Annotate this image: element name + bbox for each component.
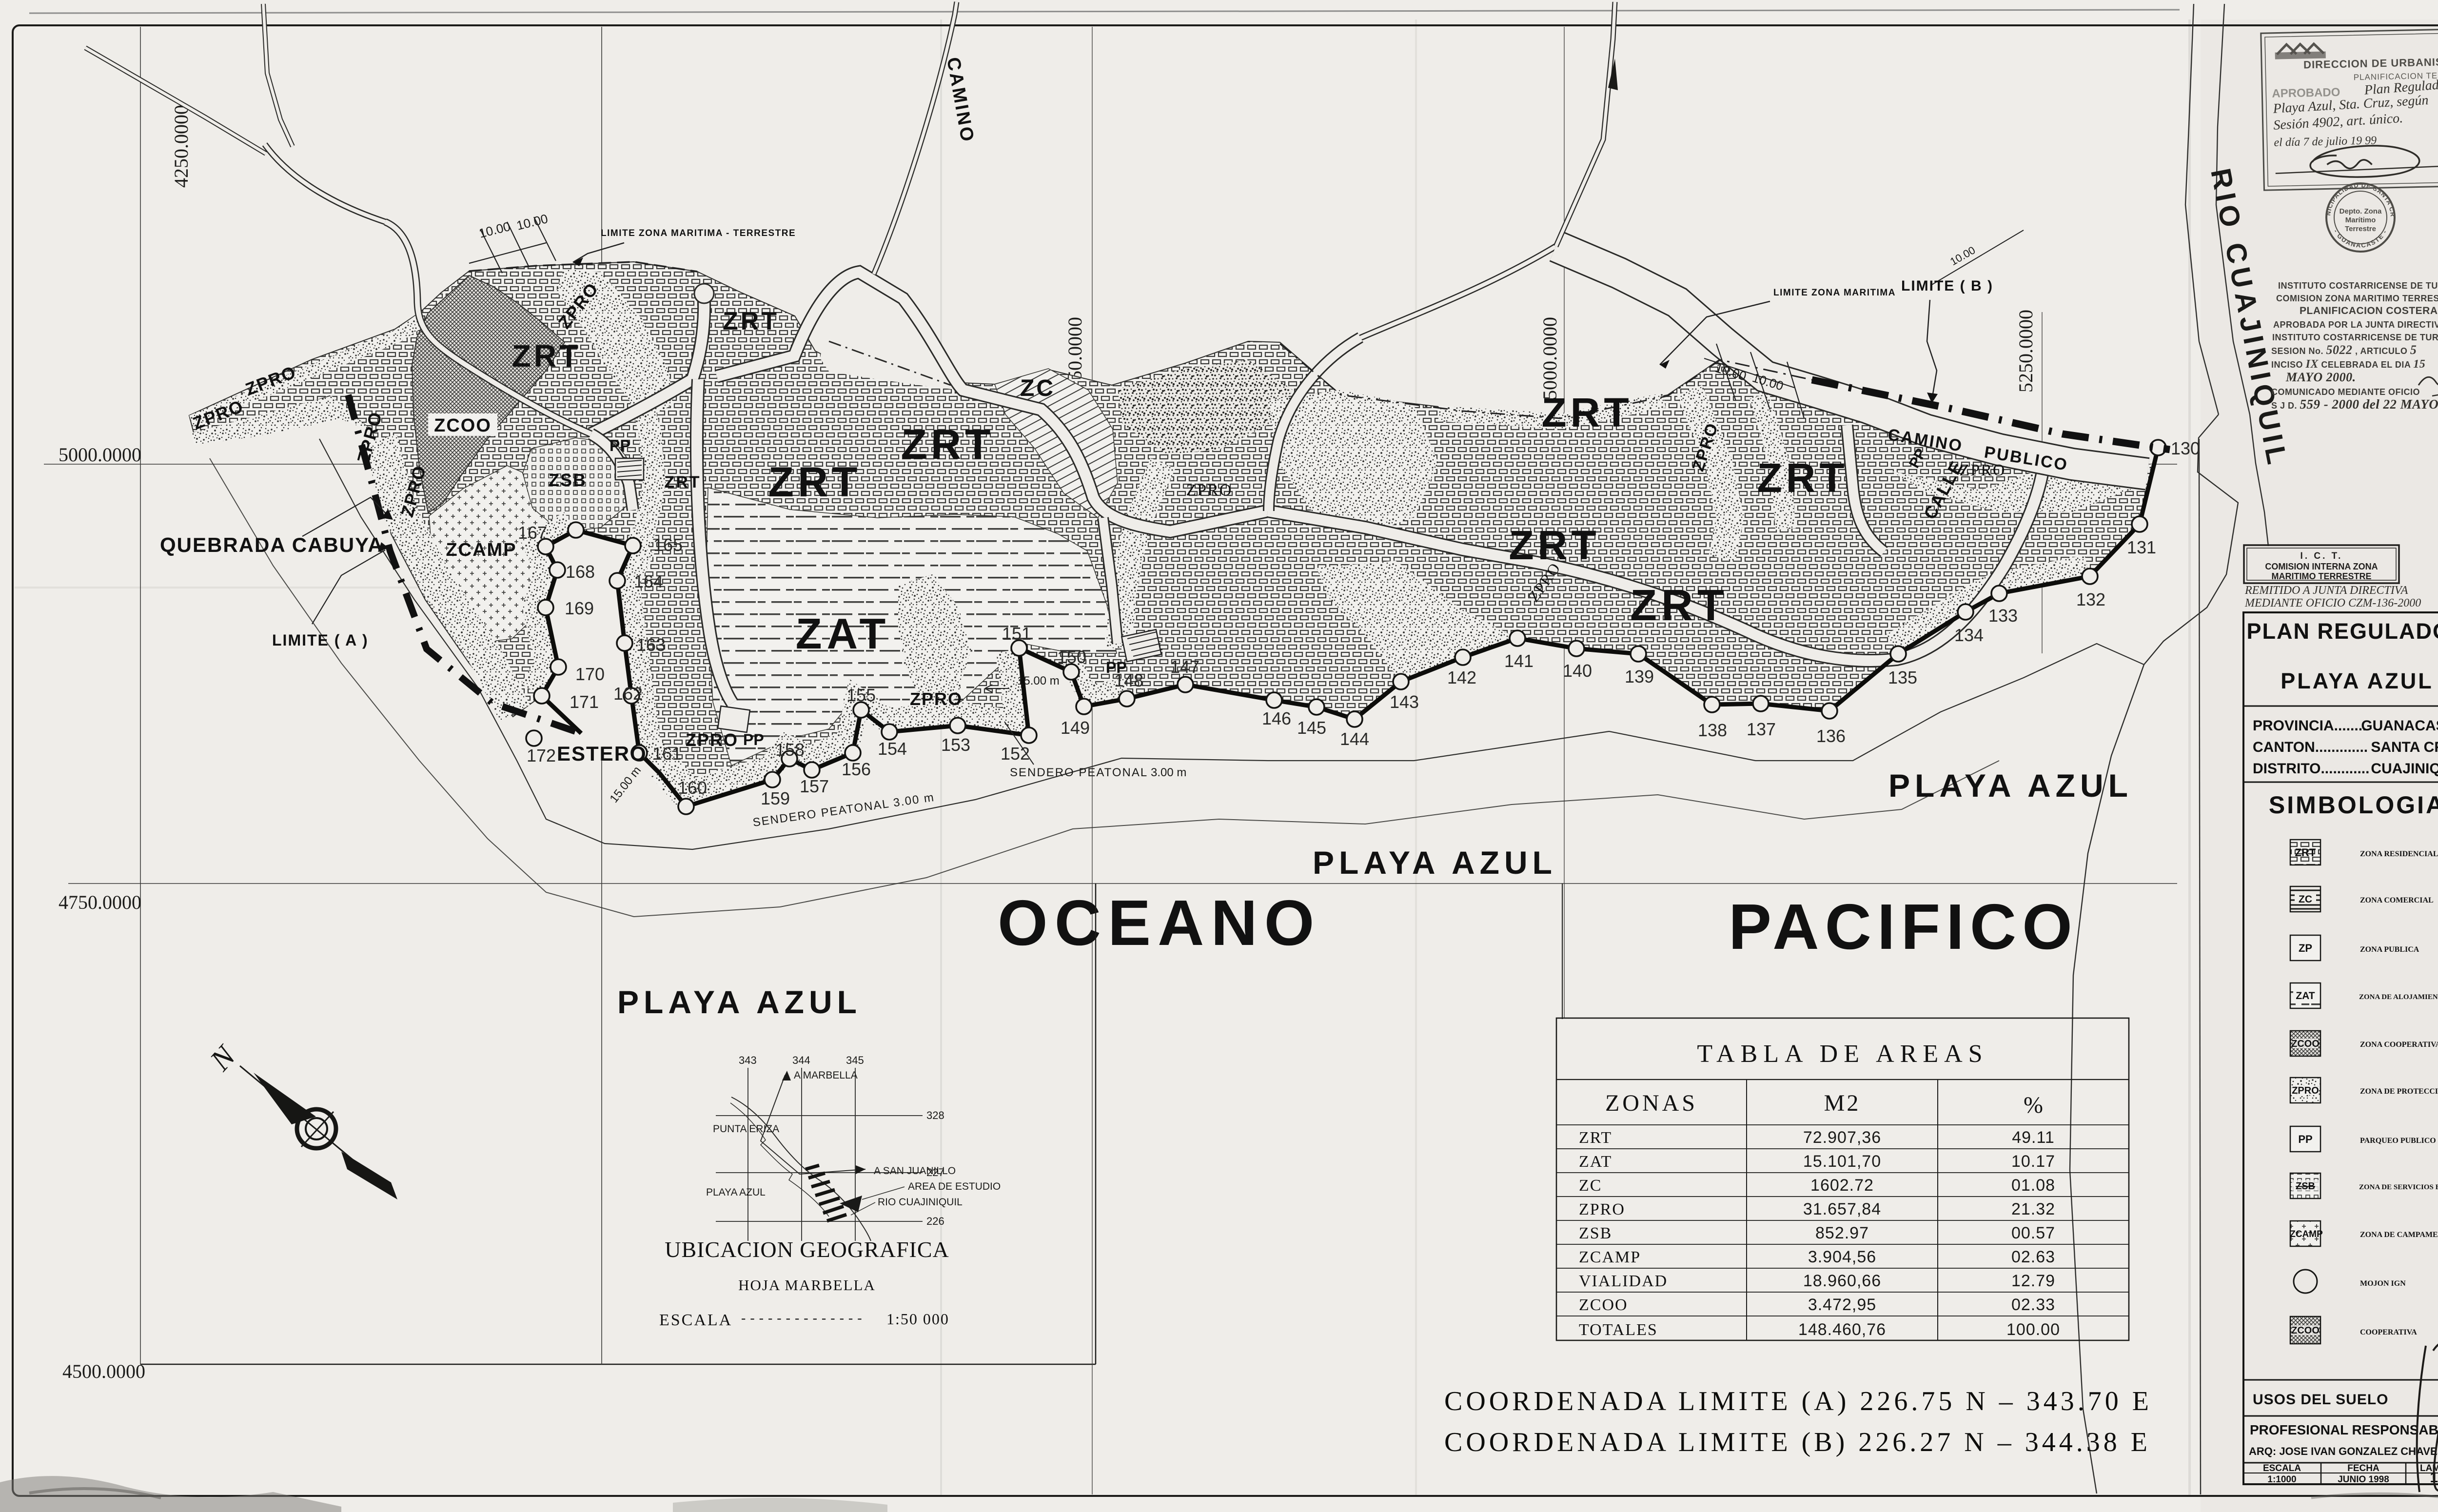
- svg-text:COOPERATIVA: COOPERATIVA: [2360, 1328, 2417, 1336]
- svg-text:134: 134: [1954, 625, 1984, 645]
- svg-text:MAYO 2000.: MAYO 2000.: [2285, 370, 2356, 384]
- svg-text:142: 142: [1447, 668, 1476, 687]
- svg-text:ZPRO: ZPRO: [1579, 1200, 1625, 1218]
- svg-text:PLAYA AZUL: PLAYA AZUL: [2281, 668, 2433, 693]
- svg-text:PACIFICO: PACIFICO: [1729, 891, 2078, 962]
- svg-text:155: 155: [846, 685, 876, 705]
- svg-text:12.79: 12.79: [2011, 1272, 2055, 1290]
- svg-text:M2: M2: [1824, 1090, 1861, 1116]
- svg-text:ZPRO: ZPRO: [1186, 481, 1233, 499]
- svg-text:171: 171: [570, 692, 599, 712]
- svg-text:151: 151: [1002, 624, 1031, 644]
- svg-text:ZRT: ZRT: [1579, 1129, 1612, 1147]
- svg-text:ZCOO: ZCOO: [2291, 1039, 2320, 1049]
- svg-text:ZPRO: ZPRO: [686, 730, 738, 750]
- svg-text:168: 168: [566, 562, 595, 582]
- svg-text:4250.0000: 4250.0000: [170, 105, 192, 188]
- svg-text:Marítimo: Marítimo: [2345, 216, 2376, 224]
- svg-text:TABLA DE AREAS: TABLA DE AREAS: [1697, 1040, 1988, 1068]
- svg-text:Terrestre: Terrestre: [2345, 225, 2376, 233]
- svg-text:COMISION ZONA MARITIMO TERREST: COMISION ZONA MARITIMO TERRESTRE: [2276, 294, 2438, 303]
- svg-text:136: 136: [1816, 726, 1846, 746]
- svg-text:ZCAMP: ZCAMP: [2290, 1229, 2323, 1239]
- svg-text:167: 167: [518, 523, 547, 543]
- svg-text:USOS DEL SUELO: USOS DEL SUELO: [2253, 1392, 2389, 1408]
- svg-text:PUNTA ERIZA: PUNTA ERIZA: [713, 1123, 779, 1135]
- svg-text:ZONA COOPERATIVAS: ZONA COOPERATIVAS: [2360, 1041, 2438, 1049]
- svg-text:148.460,76: 148.460,76: [1798, 1320, 1886, 1339]
- svg-text:1:1000: 1:1000: [2267, 1474, 2296, 1485]
- svg-text:162: 162: [613, 684, 643, 704]
- svg-text:ZONA COMERCIAL: ZONA COMERCIAL: [2360, 896, 2434, 904]
- svg-text:164: 164: [634, 571, 663, 591]
- svg-text:PLAYA AZUL: PLAYA AZUL: [1888, 767, 2133, 804]
- svg-text:15.101,70: 15.101,70: [1803, 1152, 1881, 1171]
- svg-text:345: 345: [846, 1054, 864, 1066]
- svg-text:PLAYA AZUL: PLAYA AZUL: [617, 984, 862, 1020]
- svg-text:DISTRITO............: DISTRITO............: [2253, 761, 2369, 777]
- svg-text:PROFESIONAL RESPONSABLE.: PROFESIONAL RESPONSABLE.: [2250, 1422, 2438, 1437]
- svg-text:ZAT: ZAT: [1579, 1153, 1612, 1171]
- svg-text:LIMITE ( B ): LIMITE ( B ): [1901, 278, 1993, 294]
- svg-text:ZSB: ZSB: [1579, 1224, 1612, 1242]
- svg-text:4750.0000: 4750.0000: [59, 891, 141, 913]
- svg-text:10.17: 10.17: [2011, 1152, 2055, 1171]
- svg-text:AREA DE ESTUDIO: AREA DE ESTUDIO: [908, 1181, 1001, 1192]
- svg-text:INSTITUTO COSTARRICENSE DE TUR: INSTITUTO COSTARRICENSE DE TURISMO EL: [2272, 333, 2438, 342]
- svg-text:ZSB: ZSB: [549, 470, 587, 490]
- svg-text:ZONA PUBLICA: ZONA PUBLICA: [2360, 945, 2419, 954]
- svg-text:PLAN REGULADOR: PLAN REGULADOR: [2247, 619, 2438, 644]
- svg-text:00.57: 00.57: [2011, 1224, 2055, 1242]
- svg-text:A MARBELLA: A MARBELLA: [794, 1070, 858, 1081]
- svg-text:5000.0000: 5000.0000: [59, 444, 141, 466]
- svg-text:COORDENADA LIMITE (B) 226.2: COORDENADA LIMITE (B) 226.27 N – 344.38 …: [1444, 1427, 2151, 1457]
- svg-text:ZRT: ZRT: [1630, 581, 1729, 630]
- svg-text:%: %: [2024, 1092, 2043, 1118]
- svg-text:A SAN JUANILLO: A SAN JUANILLO: [874, 1165, 956, 1177]
- svg-text:GUANACASTE: GUANACASTE: [2361, 718, 2438, 734]
- svg-text:852.97: 852.97: [1815, 1224, 1869, 1242]
- svg-text:156: 156: [842, 759, 871, 779]
- svg-text:1:50 000: 1:50 000: [886, 1310, 949, 1328]
- svg-text:158: 158: [775, 740, 805, 760]
- svg-text:APROBADA POR LA JUNTA DIRECTIV: APROBADA POR LA JUNTA DIRECTIVA DE: [2273, 320, 2438, 330]
- svg-text:226: 226: [926, 1215, 944, 1227]
- svg-text:143: 143: [1390, 692, 1419, 712]
- svg-text:LIMITE ( A ): LIMITE ( A ): [272, 631, 369, 649]
- svg-text:145: 145: [1297, 718, 1326, 738]
- svg-text:ZRT: ZRT: [512, 338, 581, 373]
- svg-text:ESCALA: ESCALA: [659, 1311, 732, 1329]
- svg-text:ZAT: ZAT: [2296, 990, 2315, 1001]
- svg-text:TOTALES: TOTALES: [1579, 1321, 1658, 1339]
- svg-text:PP: PP: [609, 437, 630, 454]
- svg-text:ZCAMP: ZCAMP: [1579, 1248, 1641, 1266]
- svg-text:172: 172: [527, 746, 556, 766]
- svg-text:02.63: 02.63: [2011, 1248, 2055, 1266]
- svg-text:49.11: 49.11: [2012, 1128, 2055, 1147]
- svg-text:COORDENADA LIMITE (A) 226.7: COORDENADA LIMITE (A) 226.75 N – 343.70 …: [1444, 1386, 2152, 1416]
- svg-text:ZRT: ZRT: [2295, 846, 2316, 859]
- svg-text:135: 135: [1888, 668, 1917, 687]
- svg-text:3.904,56: 3.904,56: [1808, 1248, 1876, 1266]
- svg-text:150: 150: [1057, 647, 1086, 667]
- svg-text:ZRT: ZRT: [768, 459, 861, 506]
- svg-text:PROVINCIA........: PROVINCIA........: [2253, 718, 2366, 734]
- svg-text:138: 138: [1698, 720, 1727, 740]
- svg-text:ZP: ZP: [2299, 942, 2312, 954]
- svg-text:18.960,66: 18.960,66: [1803, 1272, 1881, 1290]
- svg-text:149: 149: [1061, 718, 1090, 738]
- svg-text:PARQUEO PUBLICO: PARQUEO PUBLICO: [2360, 1137, 2436, 1145]
- svg-text:170: 170: [575, 664, 605, 684]
- svg-text:100.00: 100.00: [2006, 1320, 2060, 1339]
- svg-text:ESTERO: ESTERO: [557, 742, 647, 765]
- svg-text:141: 141: [1504, 651, 1534, 671]
- svg-text:OCEANO: OCEANO: [998, 887, 1321, 959]
- svg-text:ZRT: ZRT: [723, 307, 779, 335]
- svg-text:146: 146: [1262, 708, 1291, 728]
- svg-text:1602.72: 1602.72: [1810, 1176, 1874, 1195]
- svg-text:CUAJINIQUIL: CUAJINIQUIL: [2371, 761, 2438, 777]
- svg-text:ZCOO: ZCOO: [434, 415, 492, 436]
- svg-text:ZRT: ZRT: [901, 421, 994, 468]
- svg-text:159: 159: [761, 788, 790, 808]
- svg-text:ZPRO: ZPRO: [910, 689, 963, 709]
- svg-text:ZCOO: ZCOO: [1579, 1296, 1628, 1314]
- svg-text:131: 131: [2127, 537, 2156, 557]
- svg-text:144: 144: [1340, 729, 1369, 749]
- svg-text:VIALIDAD: VIALIDAD: [1579, 1272, 1668, 1290]
- svg-text:3.00 m: 3.00 m: [1151, 766, 1186, 779]
- svg-text:140: 140: [1563, 661, 1592, 681]
- svg-text:ZONA DE ALOJAMIENTO TURISTI: ZONA DE ALOJAMIENTO TURISTICO: [2359, 993, 2438, 1001]
- svg-text:FECHA: FECHA: [2347, 1463, 2379, 1473]
- svg-text:ESCALA: ESCALA: [2263, 1463, 2301, 1473]
- svg-text:Depto. Zona: Depto. Zona: [2340, 207, 2382, 216]
- svg-text:ZRT: ZRT: [1541, 390, 1632, 435]
- svg-text:ZONA DE CAMPAMENTO: ZONA DE CAMPAMENTO: [2360, 1231, 2438, 1239]
- svg-text:15.00 m: 15.00 m: [1017, 674, 1060, 687]
- svg-text:ZCAMP: ZCAMP: [446, 540, 516, 560]
- svg-text:ZRT: ZRT: [1509, 522, 1600, 568]
- svg-text:MOJON IGN: MOJON IGN: [2360, 1279, 2406, 1288]
- svg-text:ARQ: JOSE IVAN GONZALEZ CHAVES: ARQ: JOSE IVAN GONZALEZ CHAVES...A-3208: [2249, 1445, 2438, 1457]
- svg-text:CANTON.............: CANTON.............: [2253, 739, 2368, 755]
- svg-text:PLAYA AZUL: PLAYA AZUL: [706, 1187, 766, 1198]
- svg-text:ZRT: ZRT: [664, 473, 701, 491]
- svg-text:137: 137: [1747, 719, 1776, 739]
- svg-text:152: 152: [1001, 744, 1030, 764]
- svg-text:ZC: ZC: [1579, 1177, 1602, 1195]
- svg-text:153: 153: [941, 735, 970, 755]
- svg-text:ZONAS: ZONAS: [1605, 1090, 1698, 1116]
- svg-text:154: 154: [878, 739, 907, 759]
- svg-text:- - - - - - - - - - - - - -: - - - - - - - - - - - - - -: [741, 1311, 863, 1326]
- svg-text:COMISION INTERNA ZONA: COMISION INTERNA ZONA: [2265, 562, 2378, 571]
- svg-text:I. C. T.: I. C. T.: [2300, 551, 2343, 561]
- svg-text:343: 343: [739, 1054, 757, 1066]
- svg-text:328: 328: [926, 1109, 944, 1121]
- svg-text:ZONA DE SERVICIOS BASICOS: ZONA DE SERVICIOS BASICOS: [2359, 1183, 2438, 1191]
- svg-text:139: 139: [1625, 667, 1654, 687]
- svg-text:72.907,36: 72.907,36: [1803, 1128, 1881, 1147]
- svg-text:ZPRO: ZPRO: [2292, 1085, 2319, 1096]
- svg-text:SENDERO PEATONAL: SENDERO PEATONAL: [1010, 766, 1148, 779]
- svg-text:133: 133: [1988, 606, 2018, 626]
- svg-text:MARITIMO TERRESTRE: MARITIMO TERRESTRE: [2272, 571, 2372, 581]
- svg-text:5250.0000: 5250.0000: [2015, 310, 2037, 393]
- svg-text:REMITIDO A JUNTA DIRECTIVA: REMITIDO A JUNTA DIRECTIVA: [2244, 584, 2408, 597]
- svg-text:PP: PP: [743, 731, 764, 748]
- svg-text:PLANIFICACION COSTERA: PLANIFICACION COSTERA: [2300, 305, 2438, 316]
- svg-text:157: 157: [800, 776, 829, 796]
- svg-text:ZC: ZC: [2299, 894, 2312, 905]
- svg-text:SIMBOLOGIA: SIMBOLOGIA: [2269, 791, 2438, 819]
- svg-text:COMUNICADO MEDIANTE OFICIO: COMUNICADO MEDIANTE OFICIO: [2271, 387, 2420, 397]
- svg-text:5000.0000: 5000.0000: [1539, 317, 1561, 400]
- svg-text:160: 160: [678, 778, 707, 798]
- svg-text:PP: PP: [2298, 1133, 2312, 1145]
- svg-text:ZAT: ZAT: [796, 609, 891, 658]
- svg-text:165: 165: [653, 535, 683, 555]
- svg-text:130: 130: [2171, 438, 2200, 458]
- svg-text:INSTITUTO COSTARRICENSE DE TUR: INSTITUTO COSTARRICENSE DE TURISMO: [2278, 281, 2438, 291]
- svg-text:LIMITE ZONA MARITIMA - TERREST: LIMITE ZONA MARITIMA - TERRESTRE: [601, 228, 796, 238]
- svg-text:31.657,84: 31.657,84: [1803, 1200, 1881, 1218]
- svg-text:JUNIO 1998: JUNIO 1998: [2338, 1474, 2389, 1485]
- svg-text:RIO CUAJINIQUIL: RIO CUAJINIQUIL: [878, 1197, 963, 1208]
- svg-text:344: 344: [792, 1054, 810, 1066]
- svg-text:163: 163: [636, 635, 666, 655]
- svg-text:02.33: 02.33: [2011, 1296, 2055, 1314]
- svg-text:169: 169: [565, 598, 594, 618]
- svg-text:MEDIANTE OFICIO CZM-136-2000: MEDIANTE OFICIO CZM-136-2000: [2244, 597, 2421, 609]
- svg-text:LIMITE ZONA MARITIMA: LIMITE ZONA MARITIMA: [1773, 288, 1896, 298]
- svg-text:ZC: ZC: [1020, 375, 1055, 401]
- svg-text:ZRT: ZRT: [1757, 455, 1848, 501]
- svg-text:UBICACION GEOGRAFICA: UBICACION GEOGRAFICA: [665, 1237, 949, 1262]
- svg-text:ZSB: ZSB: [2296, 1181, 2315, 1192]
- svg-text:3.472,95: 3.472,95: [1808, 1296, 1876, 1314]
- svg-text:21.32: 21.32: [2011, 1200, 2055, 1218]
- svg-text:INCISO IX CELEBRADA EL DI: INCISO IX CELEBRADA EL DIA 15: [2271, 358, 2425, 371]
- svg-text:QUEBRADA CABUYA: QUEBRADA CABUYA: [160, 533, 384, 556]
- svg-text:ZPRO: ZPRO: [1960, 461, 2006, 479]
- svg-text:01.08: 01.08: [2011, 1176, 2055, 1195]
- svg-text:ZCOO: ZCOO: [2291, 1325, 2320, 1336]
- svg-text:161: 161: [652, 744, 682, 764]
- svg-text:PLAYA AZUL: PLAYA AZUL: [1313, 844, 1557, 881]
- svg-text:SANTA CRUZ: SANTA CRUZ: [2371, 739, 2438, 755]
- svg-text:HOJA MARBELLA: HOJA MARBELLA: [738, 1276, 876, 1294]
- svg-text:ZONA DE PROTECCION: ZONA DE PROTECCION: [2360, 1087, 2438, 1096]
- svg-text:PP: PP: [1106, 659, 1127, 676]
- svg-text:147: 147: [1170, 657, 1199, 677]
- svg-text:4500.0000: 4500.0000: [62, 1360, 145, 1382]
- svg-text:132: 132: [2076, 589, 2105, 609]
- svg-text:ZONA RESIDENCIAL TURISTICA: ZONA RESIDENCIAL TURISTICA: [2360, 850, 2438, 858]
